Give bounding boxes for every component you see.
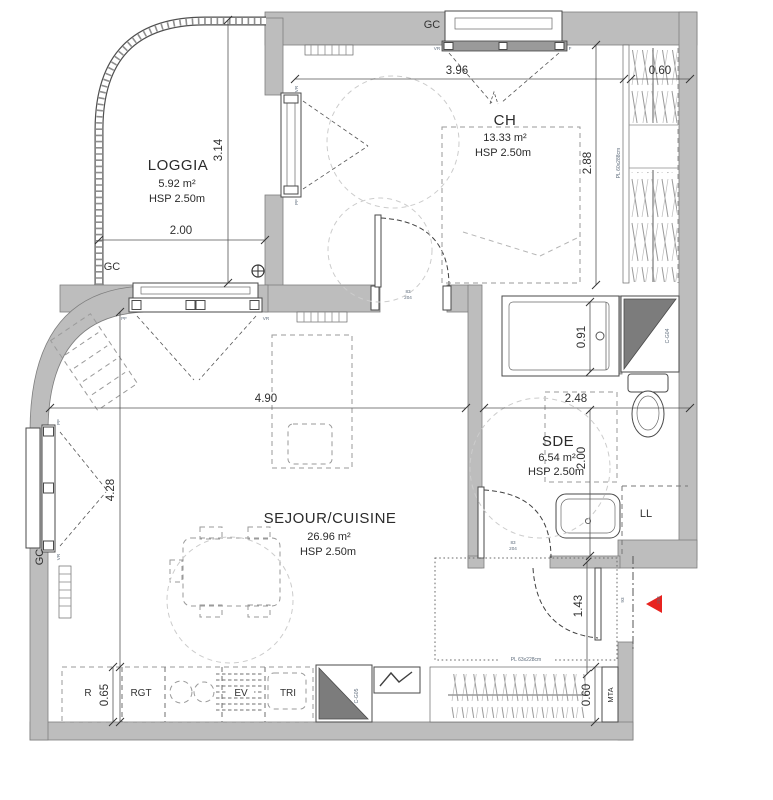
dim-shower: 0.91 [576,326,588,348]
entry-door-swing [533,568,598,638]
window-label-pf: PF [294,199,299,205]
window-label-vr: VR [434,46,441,51]
chair [170,560,182,582]
entry-closet-clothes [450,674,586,718]
window-west-sill [26,428,40,548]
chair [200,527,222,539]
window-label-vr: VR [294,85,299,92]
window-ch-mullion [499,43,507,50]
wall-corner-block [618,540,697,568]
ch-door-swing [381,218,449,286]
entry-clearance-outline [435,558,617,660]
ch-area: 13.33 m² [483,132,527,144]
cooktop-burner [170,681,192,703]
entry-door-size-w: 93 [620,597,625,603]
wall-loggia-ch-upper [265,18,283,95]
ch-name: CH [494,112,517,129]
dim-loggia-height: 3.14 [213,138,225,161]
dim-sde-width: 2.48 [565,393,587,405]
wall-ch-sejour-left [265,285,380,312]
window-ch-jamb [444,43,453,50]
radiator-west [59,566,71,618]
window-label-pf: PF [121,316,127,321]
radiator-ch [305,45,353,55]
balustrade-hatch [99,21,266,285]
window-mullion [44,483,54,493]
ch-turning-circle [327,76,459,208]
duct-kitchen-label: C-G05 [354,688,360,703]
window-jamb [44,541,54,550]
cooktop-burner [194,682,214,702]
sejour-name: SEJOUR/CUISINE [264,510,397,527]
washer-label: LL [640,508,652,520]
ch-hsp: HSP 2.50m [475,147,531,159]
dim-ch-width: 3.96 [446,65,468,77]
gc-label-west: GC [34,549,46,566]
wc-tank [628,374,668,392]
entry-door-leaf [595,568,601,640]
balustrade-outline [99,21,266,285]
radiator-sejour [297,312,347,322]
wall-sde-south [550,556,620,568]
entry-door-size-h: 204 [656,596,661,604]
duct-bath-label: C-G04 [665,328,671,343]
floor-plan-drawing: 3.96 0.60 2.88 3.14 2.00 4.90 2.48 4.28 … [0,0,773,800]
wall-loggia-ch-lower [265,195,283,290]
loggia-area: 5.92 m² [158,178,196,190]
window-ch-sill-inner [455,18,552,29]
window-label-f: F [569,46,572,51]
sde-hsp: HSP 2.50m [528,466,584,478]
gc-label-loggia: GC [104,261,121,273]
window-sejour-north-sill-inner [141,287,250,294]
sejour-area: 26.96 m² [307,531,351,543]
dim-wardrobe-depth: 0.60 [581,684,593,706]
ch-door-jamb [371,286,379,310]
ch-door-leaf [375,215,381,287]
fridge-label: R [84,688,91,699]
window-label-pf: PF [56,419,61,425]
wall-bottom [30,722,633,740]
bed-throw [540,238,577,256]
wall-right [679,12,697,560]
sde-door-leaf [478,487,484,558]
storage-label: RGT [130,688,151,699]
window-jamb [250,301,259,310]
window-loggia-ch-cap [284,186,298,194]
dim-kitchen-depth: 0.65 [99,684,111,706]
dim-sejour-width: 4.90 [255,393,277,405]
survey-point-icon [252,265,264,277]
chair [248,605,270,617]
balustrade-fill [99,21,266,285]
sde-door-size-w: 83 [510,540,516,545]
dim-closet-depth: 0.60 [649,65,671,77]
sde-door-size-h: 204 [509,546,517,551]
window-jamb [44,427,54,436]
gc-label-top: GC [424,19,441,31]
sde-name: SDE [542,433,574,450]
bed-throw [463,232,540,256]
sejour-turning-circle [167,537,293,663]
window-label-vr: VR [56,553,61,560]
dim-ch-height: 2.88 [582,152,594,174]
shower-tray-inner [509,302,609,370]
window-loggia-ch-cap [284,95,298,103]
ch-door-size-w: 83 [405,289,411,294]
sejour-furniture [51,312,352,663]
closet-partition [623,45,629,283]
window-mullion [186,301,195,310]
ch-closet-label: PL 60x288cm [616,148,622,178]
dim-entry: 1.43 [573,595,585,617]
window-label-vr: VR [263,316,270,321]
kitchen-island-sink [288,424,332,464]
waste-label: TRI [280,688,296,699]
loggia-name: LOGGIA [148,157,209,174]
chair [200,605,222,617]
meter-label: MTA [606,687,615,702]
washbasin-inner [561,499,615,533]
ch-door-jamb [443,286,451,310]
loggia-hsp: HSP 2.50m [149,193,205,205]
ch-closet [623,45,678,283]
window-loggia-ch-inner [287,100,295,190]
ch-furniture [305,45,580,302]
dim-sejour-height: 4.28 [105,479,117,501]
loggia-balustrade [99,21,266,285]
dim-loggia-width: 2.00 [170,225,192,237]
window-ch-jamb [555,43,564,50]
sejour-hsp: HSP 2.50m [300,546,356,558]
doors [371,215,633,650]
sink-label: EV [234,688,248,699]
chair [248,527,270,539]
wc-bowl-inner [637,396,659,430]
kitchen-island [272,335,352,468]
closet-clothes [631,172,677,282]
entry-closet-label: PL 63x228cm [511,657,541,663]
sde-area: 6.54 m² [538,452,576,464]
sde-door-swing [484,490,551,558]
floor-plan: 3.96 0.60 2.88 3.14 2.00 4.90 2.48 4.28 … [0,0,773,800]
closet-clothes [631,50,677,123]
ch-door-size-h: 204 [404,295,412,300]
window-mullion [196,301,205,310]
window-jamb [132,301,141,310]
